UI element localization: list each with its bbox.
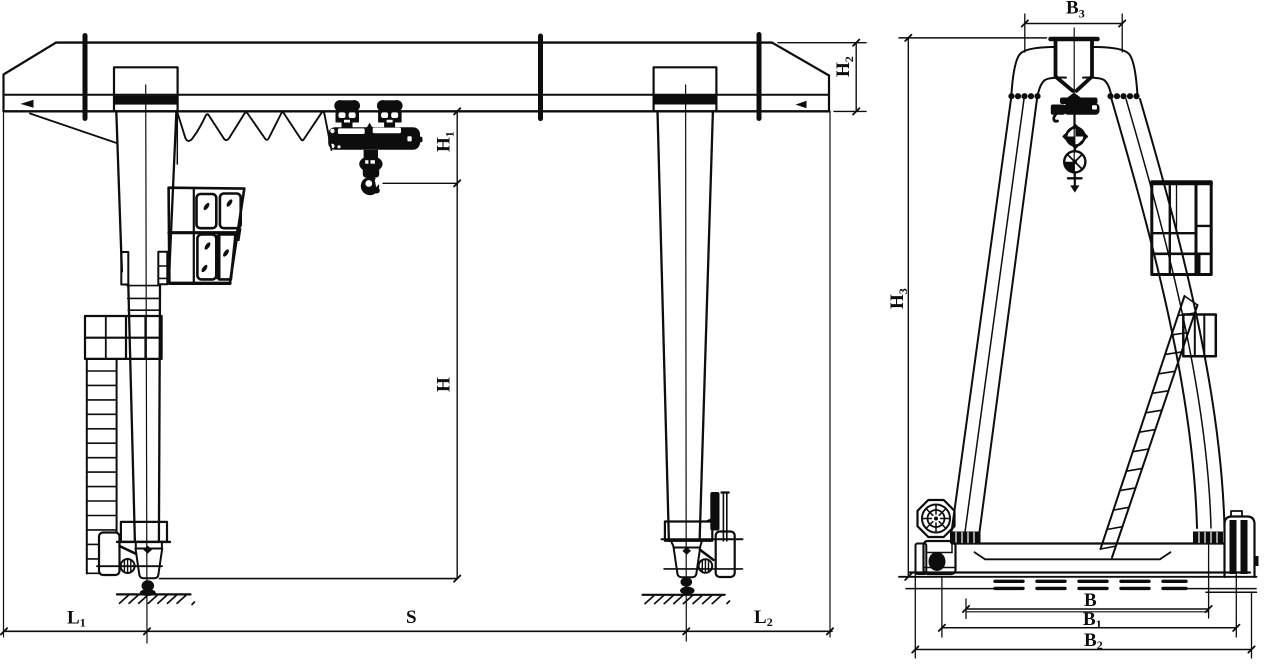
svg-text:B3: B3 <box>1066 0 1085 21</box>
svg-text:B2: B2 <box>1084 630 1103 652</box>
svg-text:H3: H3 <box>887 288 910 309</box>
svg-text:H2: H2 <box>833 56 856 77</box>
svg-text:H: H <box>434 377 455 392</box>
svg-text:S: S <box>406 607 417 628</box>
svg-text:B: B <box>1084 590 1097 611</box>
svg-text:H1: H1 <box>434 131 457 152</box>
svg-text:L1: L1 <box>67 608 86 630</box>
svg-text:L2: L2 <box>754 607 773 629</box>
